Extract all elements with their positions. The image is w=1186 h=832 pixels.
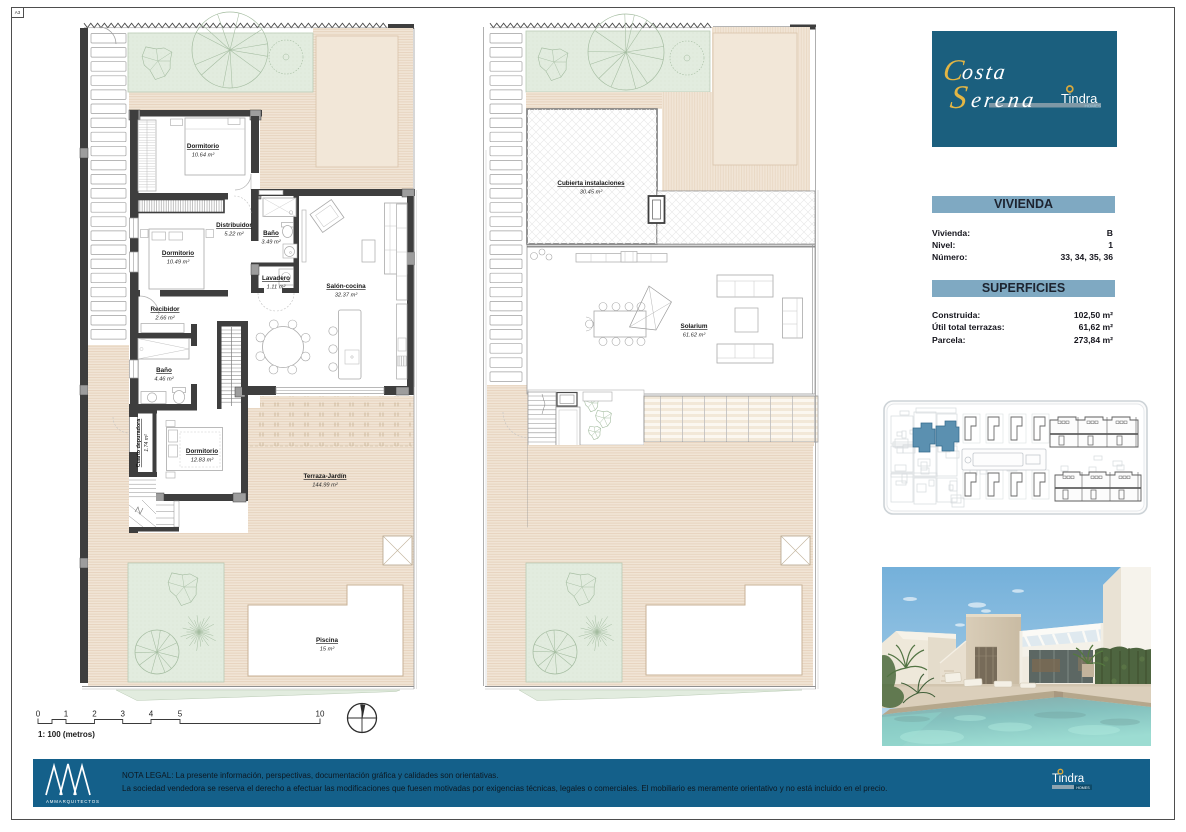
svg-text:Baño: Baño [263,230,279,237]
svg-text:AMMARQUITECTOS: AMMARQUITECTOS [46,799,100,804]
svg-text:12.83 m²: 12.83 m² [191,458,215,464]
svg-text:Recibidor: Recibidor [150,306,180,313]
svg-text:Tindra: Tindra [1061,91,1098,106]
svg-text:1.11 m²: 1.11 m² [267,285,287,291]
svg-text:2.66 m²: 2.66 m² [154,316,175,322]
svg-text:0: 0 [36,710,41,719]
svg-text:Lavadero: Lavadero [262,275,290,282]
svg-text:30.45 m²: 30.45 m² [580,190,604,196]
svg-text:10: 10 [316,710,325,719]
svg-text:Cuarto depuradora: Cuarto depuradora [136,418,142,468]
svg-text:erena: erena [970,87,1039,112]
svg-text:5.22 m²: 5.22 m² [224,232,244,238]
svg-text:15 m²: 15 m² [320,647,336,653]
svg-text:61.62 m²: 61.62 m² [683,333,707,339]
svg-text:Salón-cocina: Salón-cocina [326,283,366,290]
svg-text:Distribuidor: Distribuidor [216,222,252,229]
svg-text:HOMES: HOMES [1076,786,1090,790]
svg-text:Tindra: Tindra [1052,773,1085,785]
svg-text:Terraza-Jardín: Terraza-Jardín [304,473,347,480]
svg-text:144.99 m²: 144.99 m² [312,483,339,489]
svg-text:Dormitorio: Dormitorio [162,250,194,257]
svg-text:2: 2 [92,710,97,719]
svg-text:4.46 m²: 4.46 m² [154,377,174,383]
svg-text:3.49 m²: 3.49 m² [261,240,281,246]
svg-text:3: 3 [120,710,125,719]
svg-text:4: 4 [149,710,154,719]
svg-text:10.49 m²: 10.49 m² [167,260,191,266]
svg-text:1: 1 [64,710,69,719]
svg-text:Baño: Baño [156,367,172,374]
svg-text:Cubierta instalaciones: Cubierta instalaciones [557,180,625,187]
svg-text:Dormitorio: Dormitorio [187,143,219,150]
svg-text:Piscina: Piscina [316,637,339,644]
svg-text:Dormitorio: Dormitorio [186,448,218,455]
svg-text:32.37 m²: 32.37 m² [335,293,359,299]
svg-text:10.64 m²: 10.64 m² [192,153,216,159]
svg-text:Solarium: Solarium [681,323,708,330]
svg-text:5: 5 [178,710,183,719]
svg-text:1: 100 (metros): 1: 100 (metros) [38,730,95,739]
svg-text:1.74 m²: 1.74 m² [144,434,150,452]
